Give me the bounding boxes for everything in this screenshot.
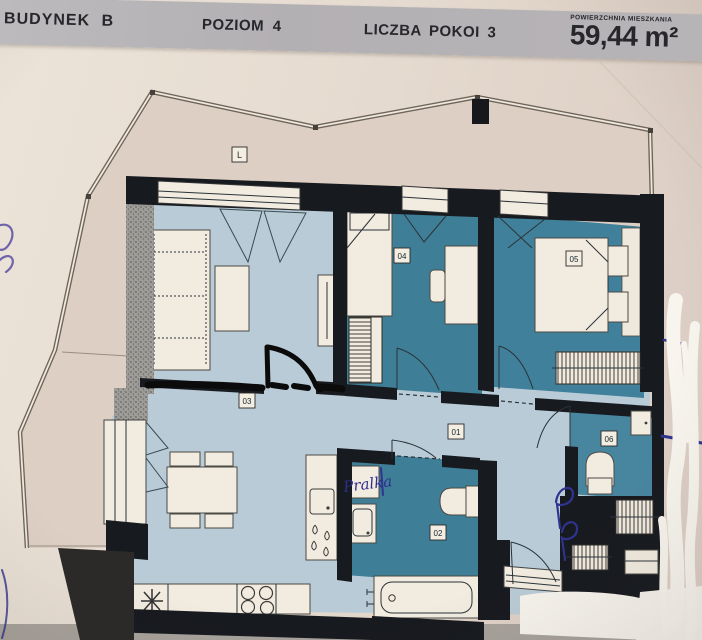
photo-vignette [0,0,702,640]
floorplan-drawing: L [0,0,702,640]
level-label: POZIOM 4 [202,16,282,35]
building-label: BUDYNEK B [4,10,115,31]
floorplan-photo: L [0,0,702,640]
rooms-count-label: LICZBA POKOI 3 [364,21,497,41]
area-block: POWIERZCHNIA MIESZKANIA 59,44 m² [569,14,678,52]
area-value: 59,44 m² [569,21,678,52]
